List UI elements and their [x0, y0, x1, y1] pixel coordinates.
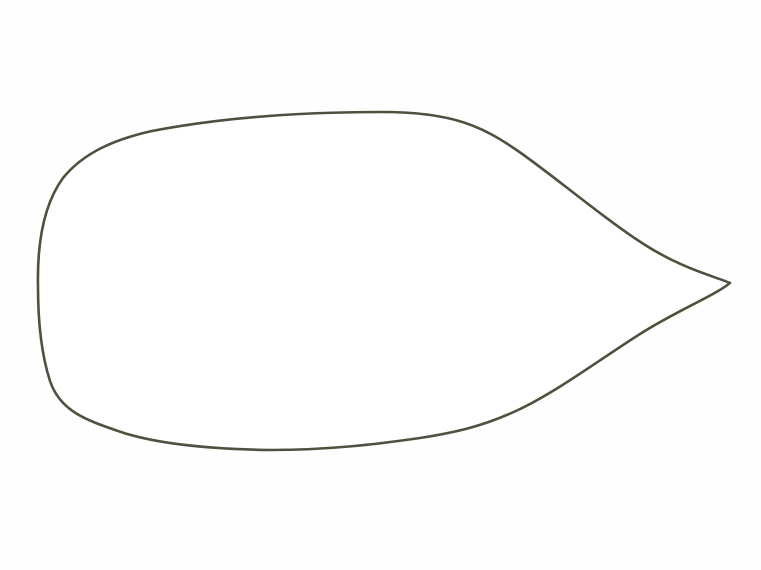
yacht-floorplan-figure: yacht-interior-deck-plan [0, 0, 761, 570]
floorplan-svg: yacht-interior-deck-plan [0, 0, 761, 570]
